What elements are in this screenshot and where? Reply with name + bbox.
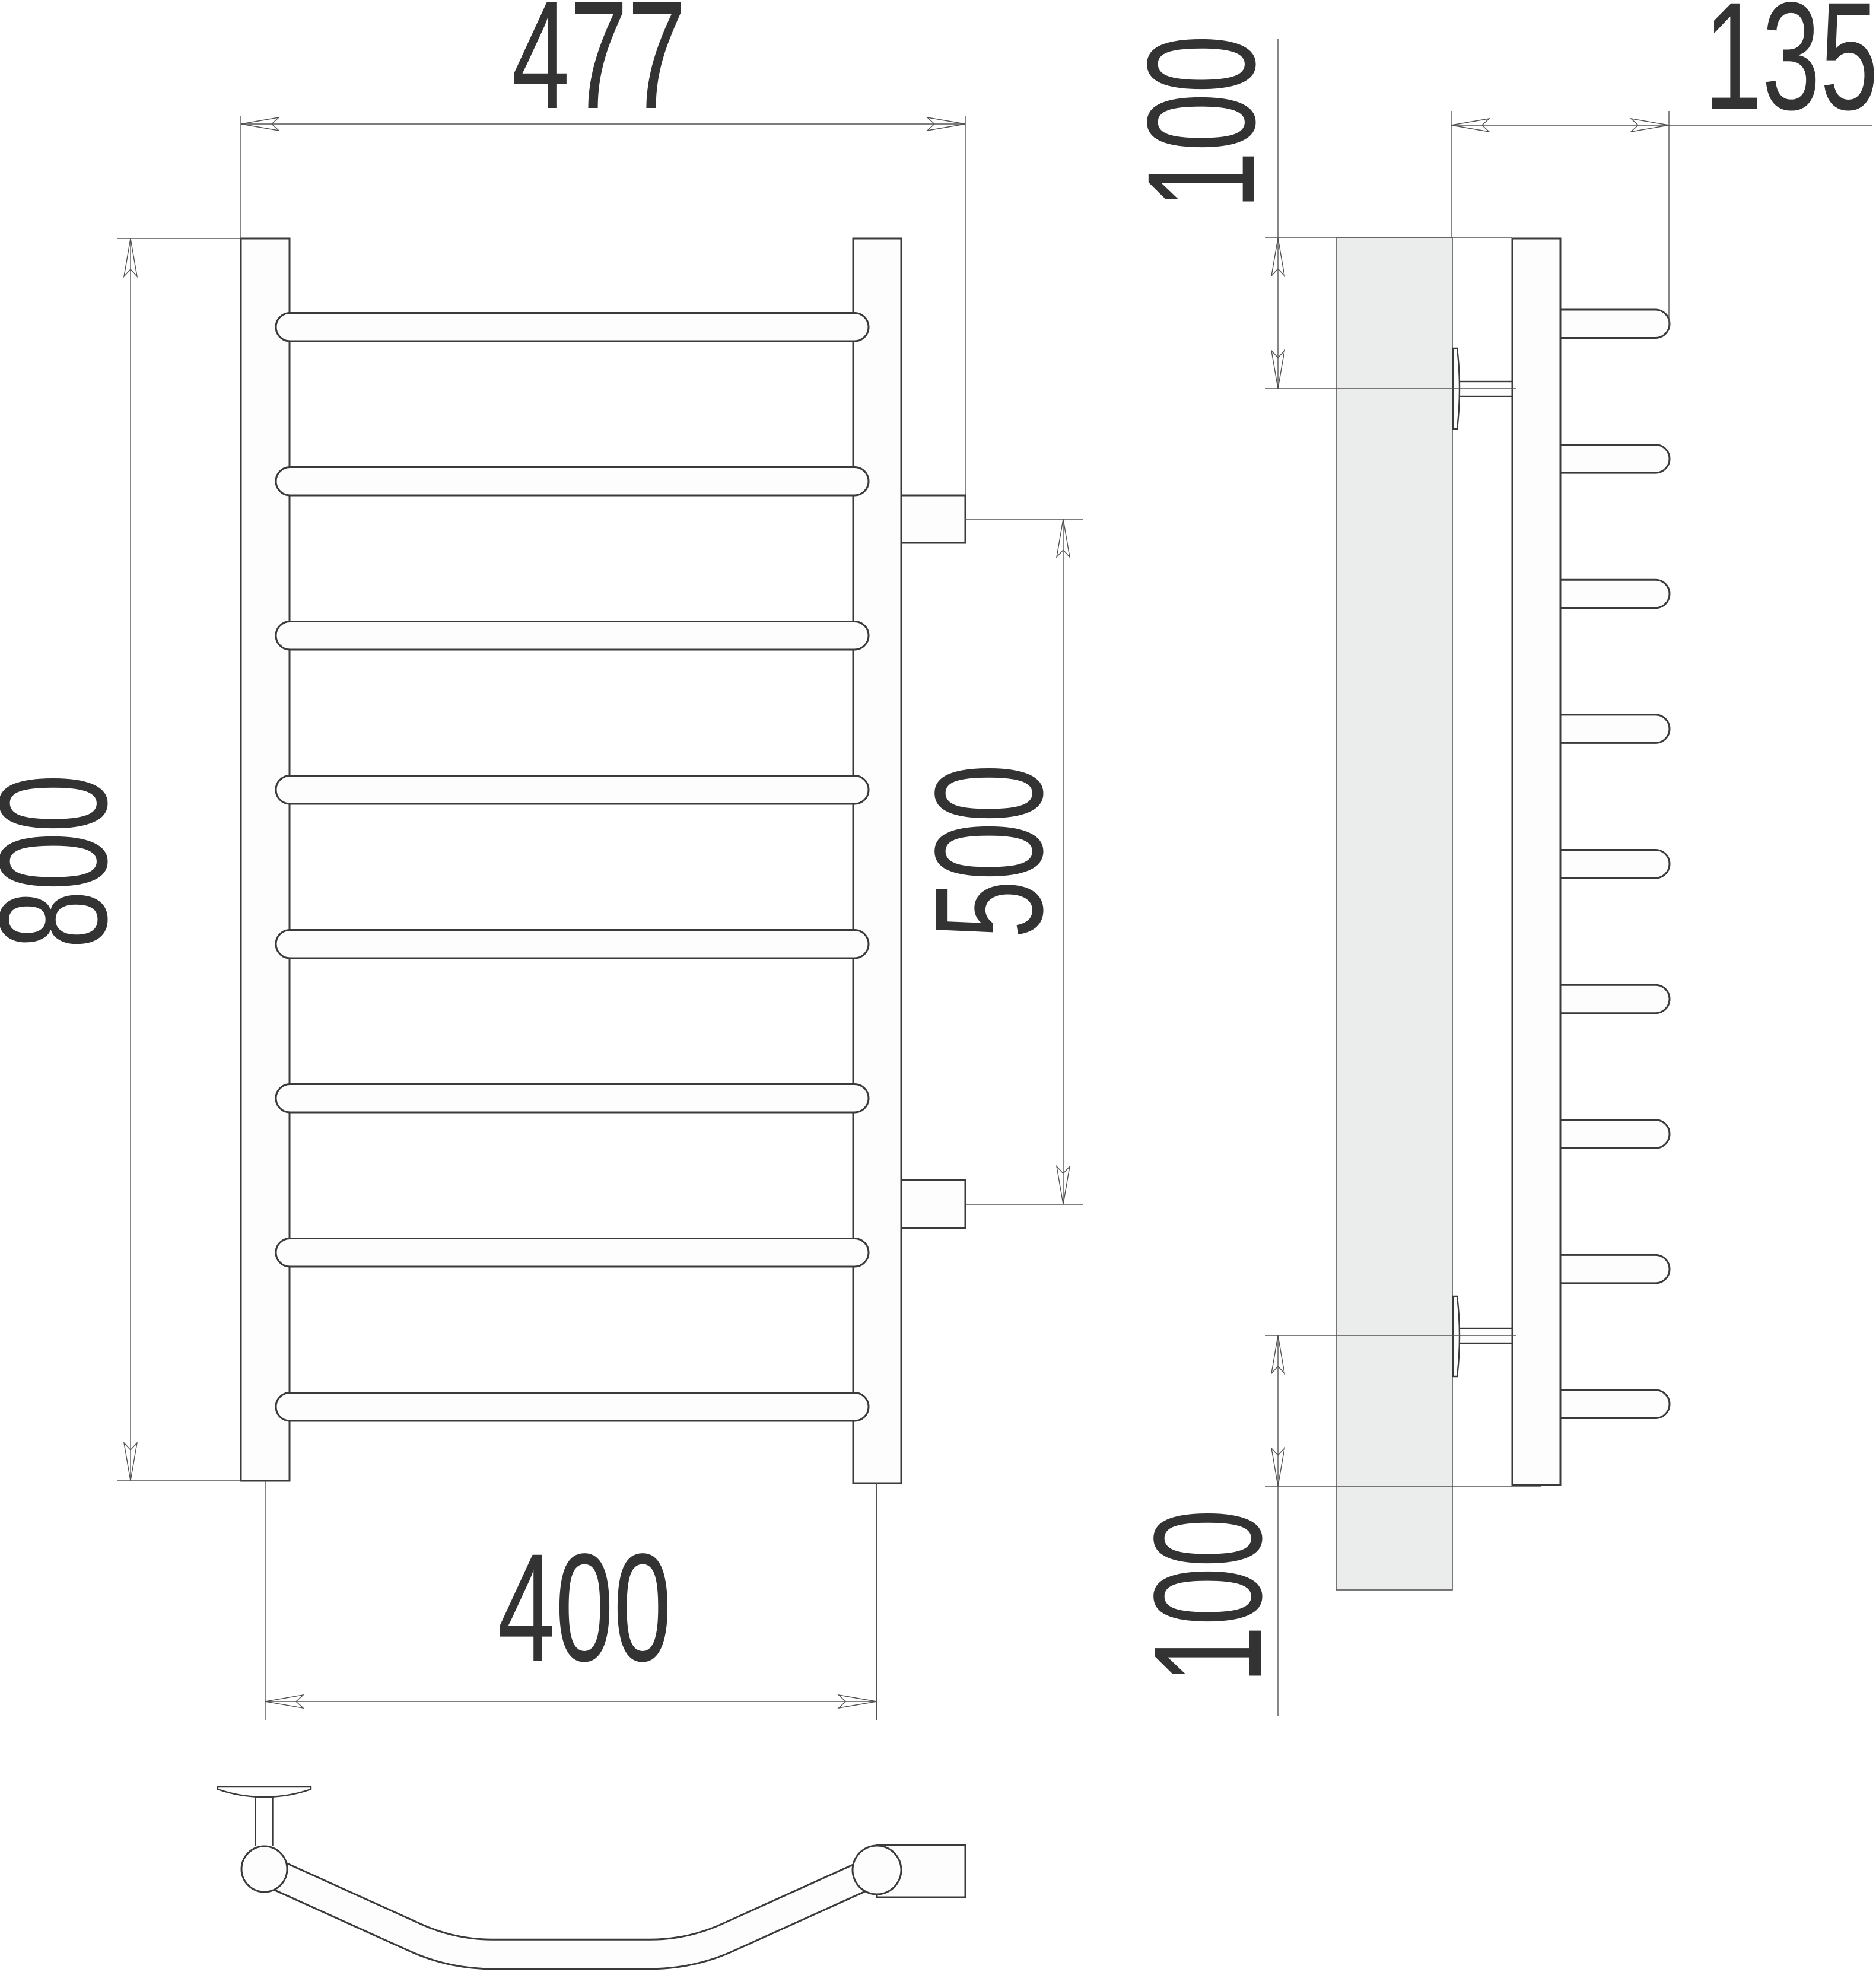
svg-text:500: 500	[903, 764, 1074, 939]
svg-text:135: 135	[1704, 0, 1876, 142]
svg-text:477: 477	[511, 0, 686, 141]
svg-text:800: 800	[0, 774, 139, 949]
svg-text:400: 400	[497, 1522, 672, 1693]
svg-text:100: 100	[1122, 1509, 1293, 1684]
svg-text:100: 100	[1115, 35, 1287, 209]
